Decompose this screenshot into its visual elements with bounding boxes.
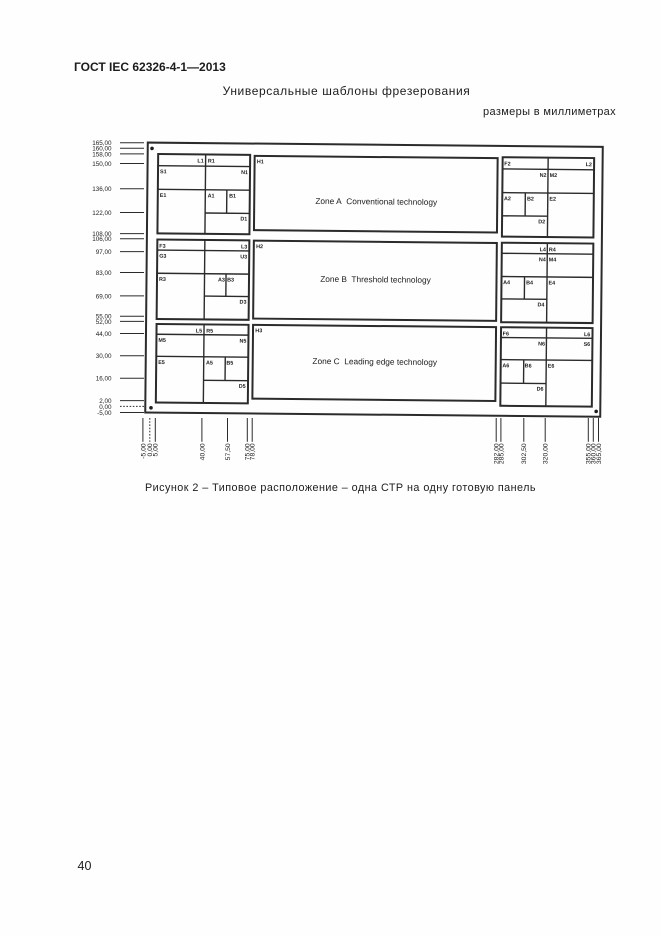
svg-text:M4: M4	[549, 257, 557, 263]
svg-text:158,00: 158,00	[92, 151, 112, 158]
svg-text:E6: E6	[548, 364, 555, 370]
svg-text:F2: F2	[504, 161, 510, 167]
svg-text:L5: L5	[196, 329, 202, 335]
svg-text:E5: E5	[158, 360, 165, 366]
svg-text:R1: R1	[208, 159, 215, 165]
svg-text:F6: F6	[503, 331, 509, 337]
svg-text:A4: A4	[503, 280, 510, 286]
svg-text:Zone C Leading edge technolog: Zone C Leading edge technology	[312, 356, 437, 367]
svg-text:D2: D2	[538, 219, 545, 225]
svg-text:57,50: 57,50	[225, 443, 232, 460]
svg-text:A1: A1	[208, 193, 215, 199]
svg-text:B4: B4	[526, 280, 533, 286]
svg-text:D4: D4	[537, 302, 544, 308]
svg-text:H1: H1	[257, 159, 264, 165]
svg-text:L6: L6	[584, 332, 590, 338]
svg-text:16,00: 16,00	[96, 376, 112, 383]
svg-text:97,00: 97,00	[96, 249, 112, 256]
svg-text:N2: N2	[540, 173, 547, 179]
svg-text:44,00: 44,00	[96, 331, 112, 338]
svg-text:122,00: 122,00	[92, 210, 112, 217]
svg-text:30,00: 30,00	[96, 353, 112, 360]
svg-text:N1: N1	[241, 170, 248, 176]
svg-text:D1: D1	[240, 217, 247, 223]
svg-text:E1: E1	[160, 193, 167, 199]
svg-text:L3: L3	[241, 244, 247, 250]
svg-text:-5,00: -5,00	[97, 410, 112, 417]
svg-text:52,00: 52,00	[96, 319, 112, 326]
svg-text:G3: G3	[159, 254, 166, 260]
svg-text:E4: E4	[549, 281, 556, 287]
svg-text:N5: N5	[239, 339, 246, 345]
svg-text:150,00: 150,00	[92, 161, 112, 168]
svg-text:A5: A5	[206, 360, 213, 366]
svg-text:365,00: 365,00	[596, 443, 603, 464]
svg-text:S1: S1	[160, 169, 167, 175]
svg-text:H2: H2	[256, 244, 263, 250]
svg-text:106,00: 106,00	[92, 236, 112, 243]
svg-text:R3: R3	[159, 277, 166, 283]
svg-text:5,00: 5,00	[153, 443, 160, 456]
svg-text:L4: L4	[540, 247, 546, 253]
svg-text:B1: B1	[229, 194, 236, 200]
svg-text:A3: A3	[218, 277, 225, 283]
svg-text:B3: B3	[227, 278, 234, 284]
svg-text:69,00: 69,00	[96, 293, 112, 300]
svg-text:D5: D5	[239, 384, 246, 390]
svg-text:S6: S6	[584, 342, 591, 348]
svg-text:N4: N4	[539, 257, 546, 263]
svg-text:302,50: 302,50	[521, 443, 528, 464]
svg-text:320,00: 320,00	[543, 443, 550, 464]
svg-text:M5: M5	[158, 338, 166, 344]
svg-text:E2: E2	[549, 197, 556, 203]
svg-text:78,00: 78,00	[250, 443, 257, 460]
svg-text:40,00: 40,00	[199, 443, 206, 460]
svg-text:R4: R4	[549, 247, 556, 253]
svg-text:M2: M2	[550, 173, 558, 179]
svg-text:B6: B6	[525, 363, 532, 369]
svg-text:A2: A2	[504, 196, 511, 202]
svg-text:L1: L1	[197, 159, 203, 165]
svg-text:N6: N6	[538, 341, 545, 347]
svg-text:F3: F3	[159, 244, 165, 250]
svg-text:L2: L2	[586, 162, 592, 168]
svg-text:Zone B Threshold technology: Zone B Threshold technology	[320, 274, 431, 285]
svg-text:R5: R5	[206, 329, 213, 335]
svg-text:H3: H3	[255, 328, 262, 334]
svg-text:A6: A6	[502, 363, 509, 369]
svg-text:B2: B2	[527, 196, 534, 202]
svg-text:285,00: 285,00	[498, 443, 505, 464]
svg-text:D3: D3	[240, 300, 247, 306]
svg-text:83,00: 83,00	[96, 270, 112, 277]
svg-text:Zone A Conventional technolog: Zone A Conventional technology	[315, 196, 438, 207]
svg-text:U3: U3	[240, 254, 247, 260]
svg-text:D6: D6	[537, 387, 544, 393]
svg-text:136,00: 136,00	[92, 186, 112, 193]
svg-text:B5: B5	[226, 361, 233, 367]
